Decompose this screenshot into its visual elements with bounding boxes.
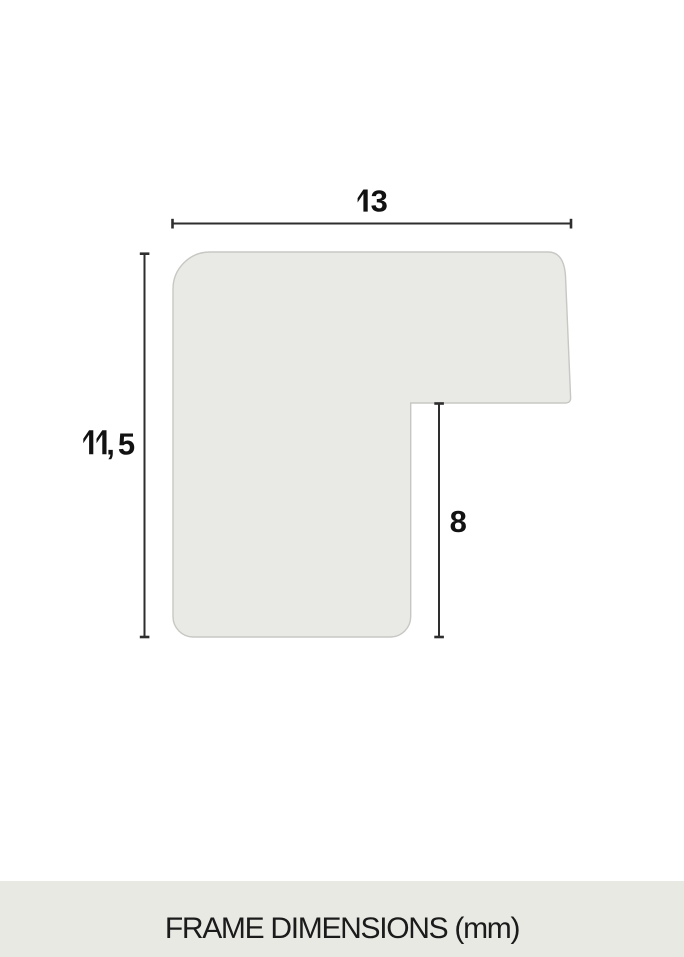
svg-text:8: 8 [450, 504, 467, 539]
svg-text:5: 5 [118, 426, 135, 461]
svg-text:,: , [106, 426, 115, 461]
svg-text:3: 3 [371, 184, 388, 219]
